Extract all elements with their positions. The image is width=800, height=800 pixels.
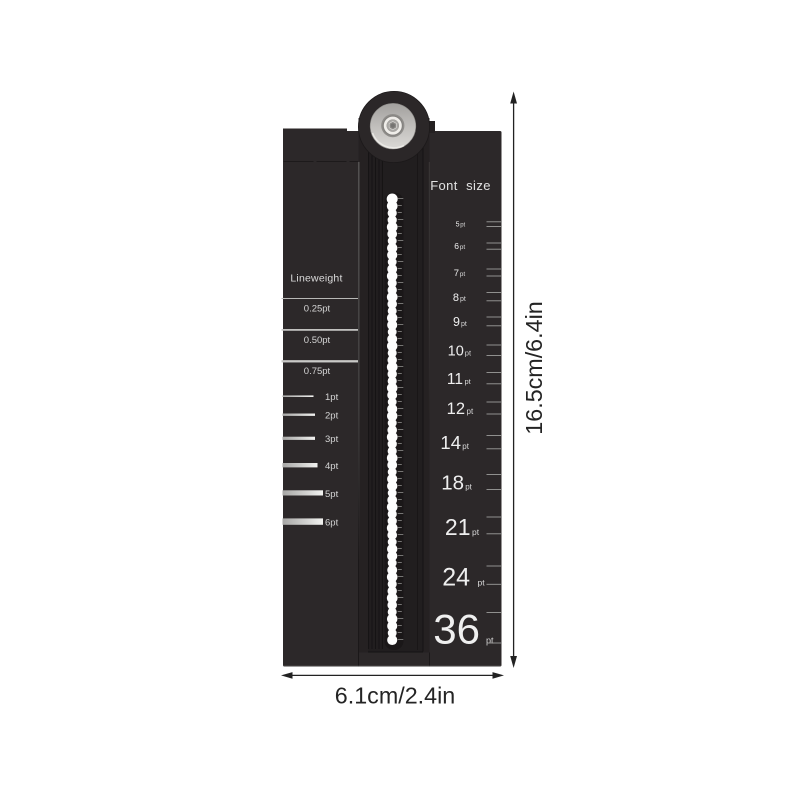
svg-text:11: 11 — [447, 371, 463, 388]
svg-text:36: 36 — [433, 606, 480, 653]
svg-text:pt: pt — [465, 349, 472, 358]
svg-text:pt: pt — [460, 271, 466, 278]
svg-text:0.25pt: 0.25pt — [304, 304, 331, 315]
svg-text:pt: pt — [460, 244, 466, 251]
svg-text:pt: pt — [478, 577, 486, 587]
svg-text:1pt: 1pt — [325, 392, 339, 403]
svg-text:pt: pt — [461, 321, 467, 328]
svg-text:pt: pt — [465, 377, 472, 386]
svg-text:6pt: 6pt — [325, 518, 339, 529]
svg-text:0.75pt: 0.75pt — [304, 366, 331, 377]
svg-text:pt: pt — [460, 296, 466, 303]
svg-text:pt: pt — [467, 407, 474, 416]
svg-text:7: 7 — [454, 268, 459, 279]
svg-text:8: 8 — [453, 292, 459, 304]
svg-text:5: 5 — [456, 222, 460, 229]
svg-text:5pt: 5pt — [325, 489, 339, 500]
svg-text:pt: pt — [465, 483, 472, 492]
svg-text:Font: Font — [430, 178, 458, 193]
svg-text:pt: pt — [462, 442, 469, 451]
svg-text:9: 9 — [453, 315, 460, 329]
svg-text:4pt: 4pt — [325, 461, 339, 472]
svg-text:21: 21 — [445, 514, 471, 540]
svg-text:12: 12 — [447, 400, 465, 418]
svg-text:Lineweight: Lineweight — [290, 273, 342, 285]
svg-text:2pt: 2pt — [325, 411, 339, 422]
svg-text:10: 10 — [448, 344, 464, 360]
svg-text:24: 24 — [442, 563, 470, 591]
svg-text:0.50pt: 0.50pt — [304, 335, 331, 346]
svg-text:pt: pt — [460, 223, 465, 229]
svg-text:6.1cm/2.4in: 6.1cm/2.4in — [335, 683, 455, 709]
svg-text:size: size — [466, 178, 491, 193]
svg-text:pt: pt — [486, 636, 494, 646]
svg-text:pt: pt — [472, 527, 480, 537]
svg-text:14: 14 — [440, 432, 461, 453]
svg-text:16.5cm/6.4in: 16.5cm/6.4in — [521, 301, 547, 434]
svg-text:3pt: 3pt — [325, 434, 339, 445]
svg-text:6: 6 — [454, 241, 459, 251]
svg-text:18: 18 — [441, 472, 464, 495]
